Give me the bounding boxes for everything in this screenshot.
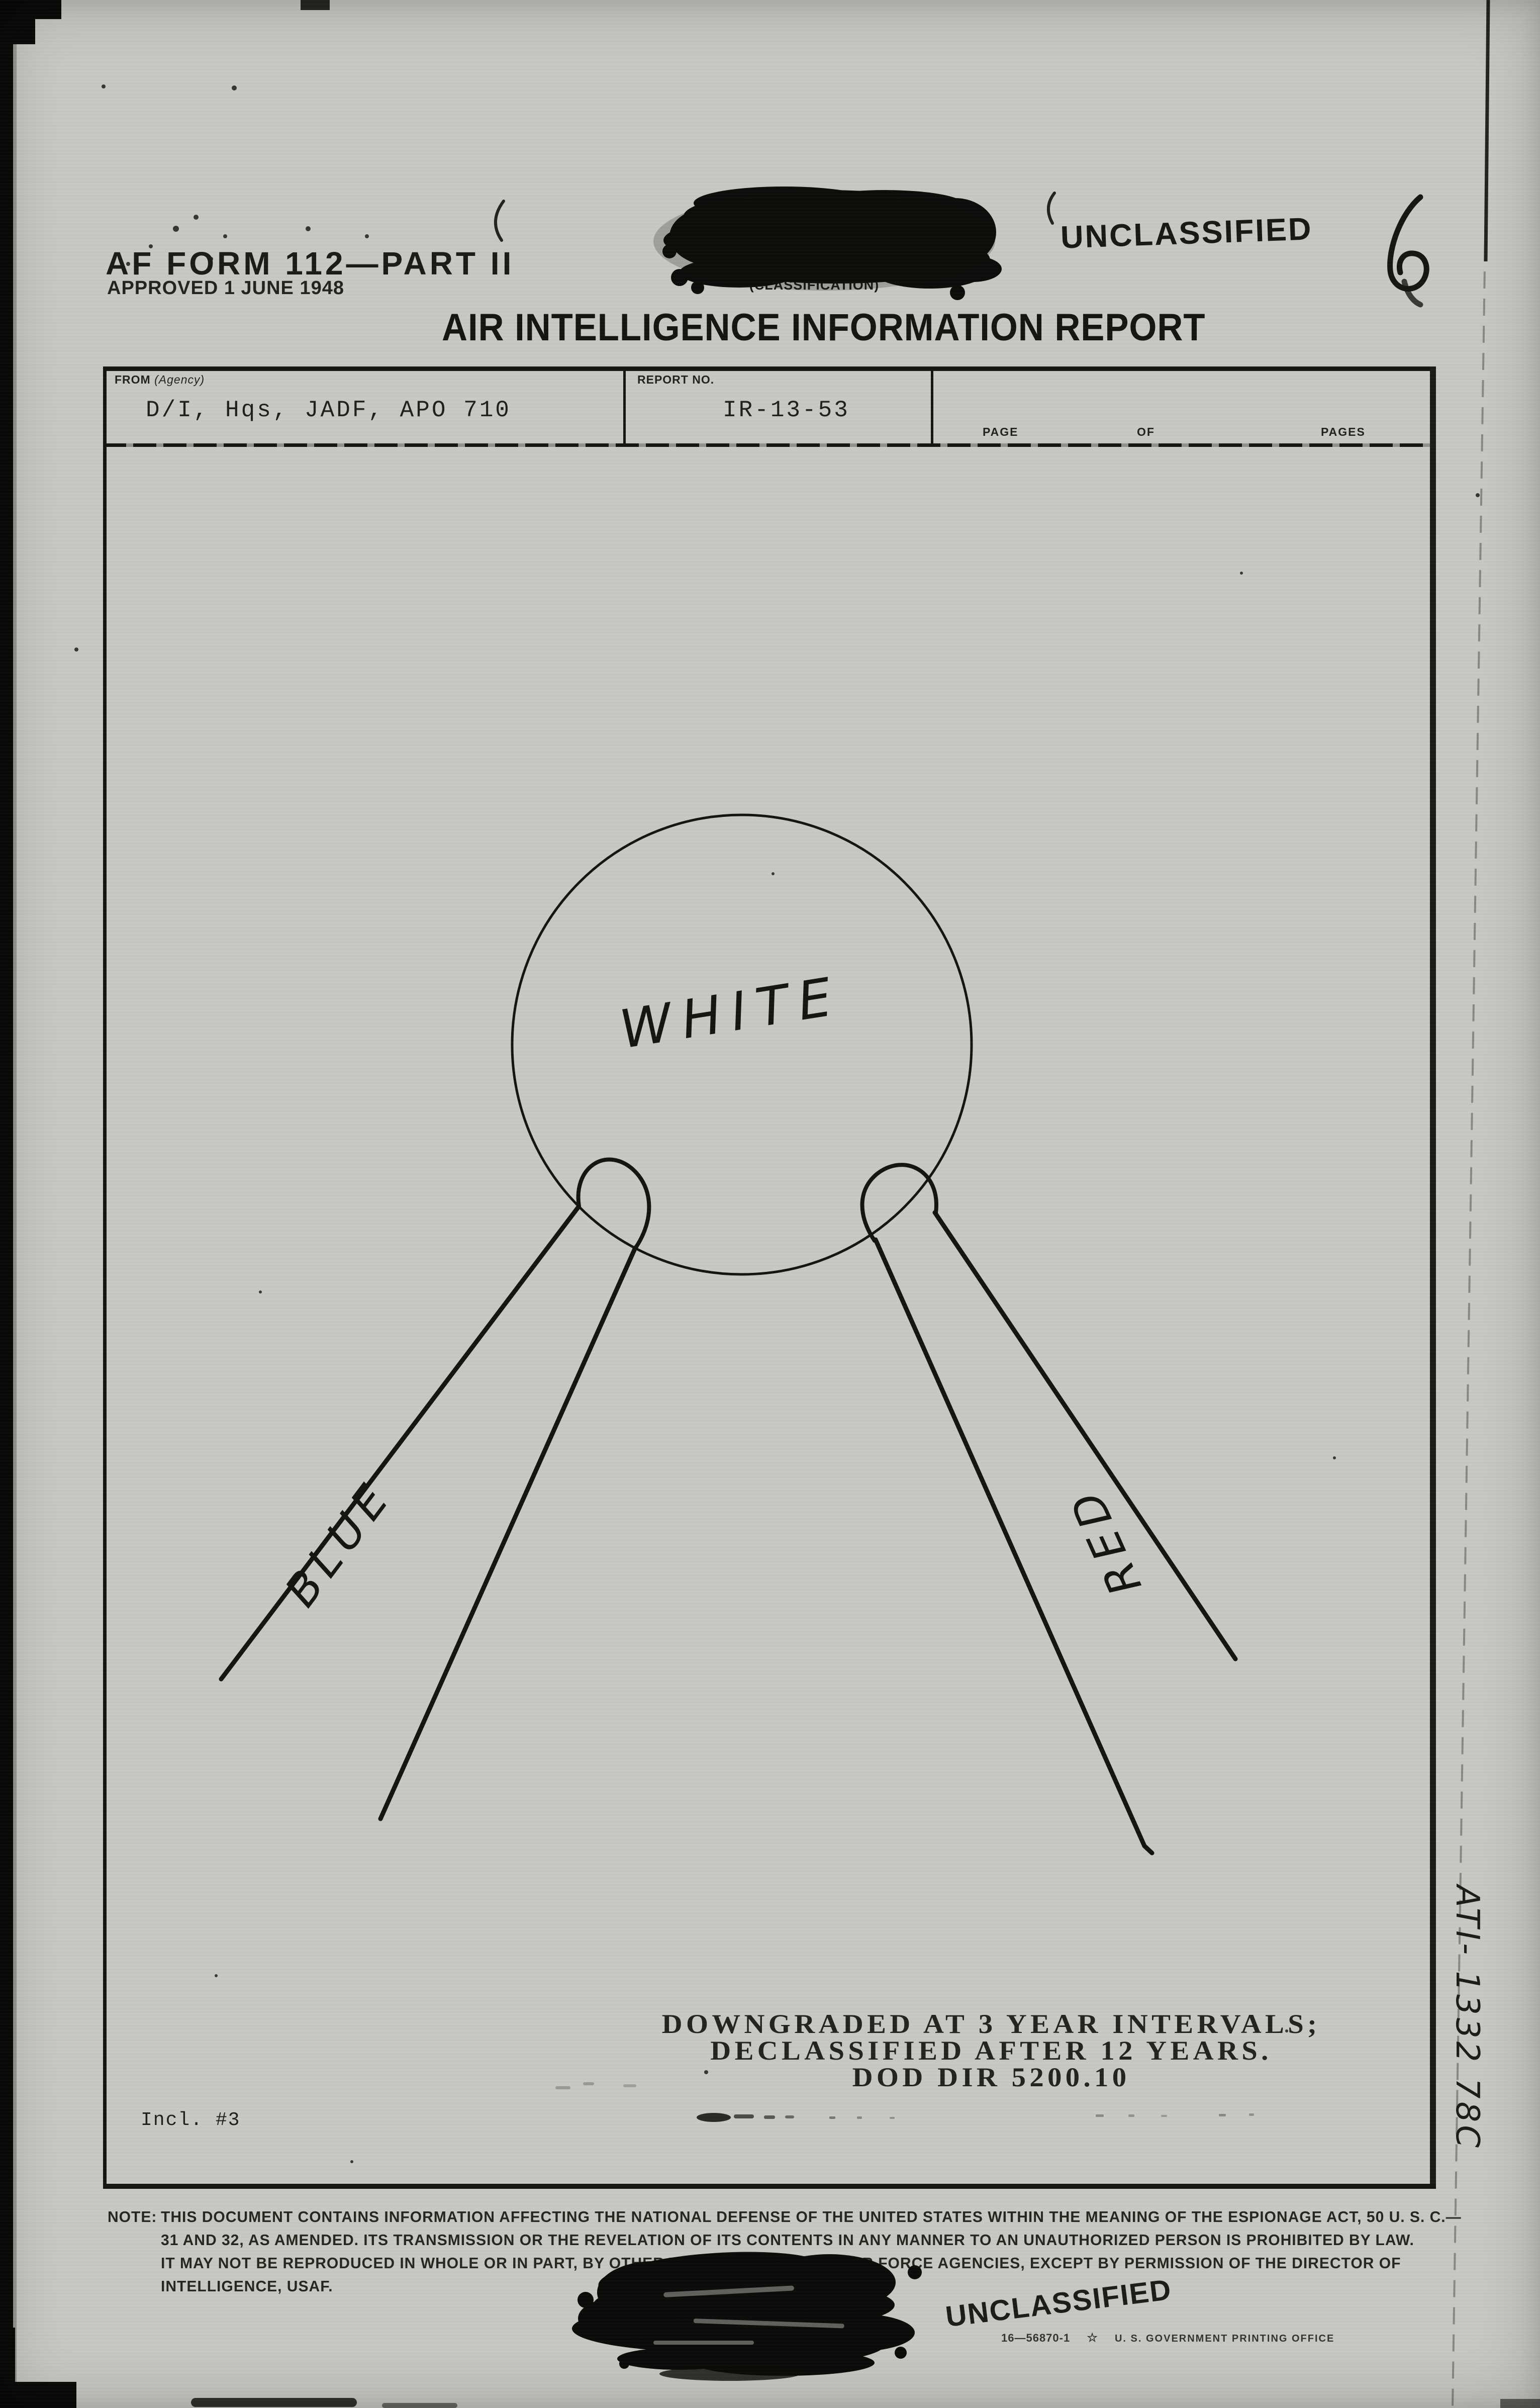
left-beam-inner-line — [380, 1248, 635, 1819]
right-beam-outer-line — [935, 1213, 1235, 1659]
scanned-document-page: AF FORM 112—PART II APPROVED 1 JUNE 1948… — [0, 0, 1540, 2408]
ink-specks — [74, 84, 1480, 2163]
right-beam-tip — [862, 1165, 936, 1241]
left-beam-tip — [579, 1160, 649, 1247]
diagram-and-marks-layer: WHITE BLUE RED — [0, 0, 1540, 2408]
page-edge-line-dark — [1486, 0, 1488, 261]
handwritten-number-path — [1390, 197, 1427, 305]
circle-label: WHITE — [616, 965, 846, 1061]
left-beam-outer-line — [221, 1208, 578, 1679]
redaction-blob-top — [653, 187, 1002, 300]
margin-note-handwriting: ATI- 1332 78C — [1449, 1883, 1486, 2151]
left-beam-label: BLUE — [275, 1470, 403, 1616]
right-beam-label: RED — [1058, 1478, 1151, 1603]
sighting-diagram — [221, 815, 1235, 1853]
redaction-blob-bottom — [572, 2245, 922, 2381]
diagram-circle — [512, 815, 972, 1274]
signature-smudge-line — [555, 2082, 1254, 2122]
